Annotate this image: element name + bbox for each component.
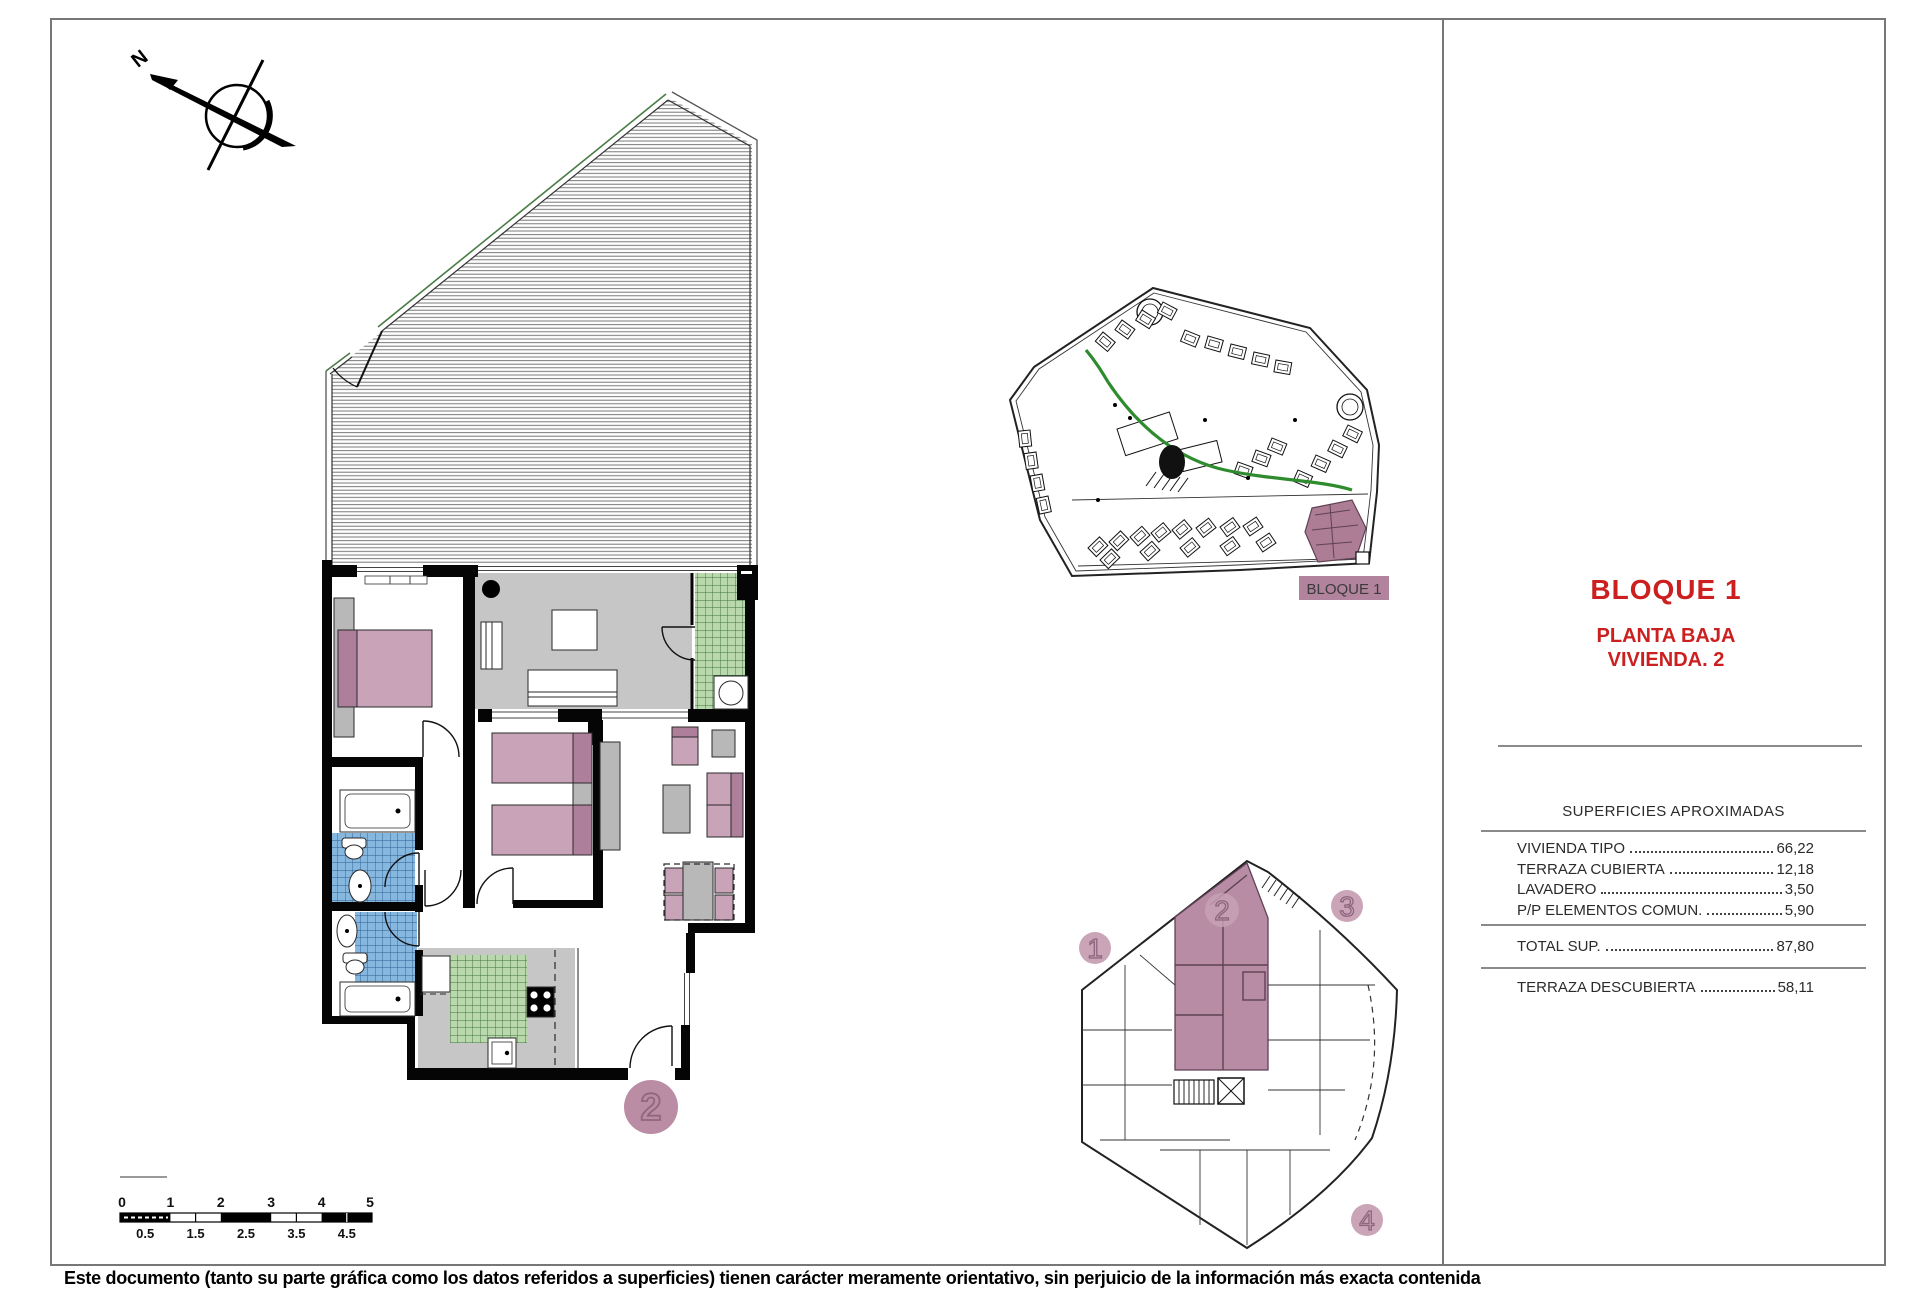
disclaimer-text: Este documento (tanto su parte gráfica c… <box>64 1268 1914 1289</box>
table-row: VIVIENDA TIPO 66,22 <box>1481 840 1866 861</box>
table-rule-bottom <box>1481 967 1866 969</box>
row-label: TERRAZA CUBIERTA <box>1517 861 1665 878</box>
total-label: TOTAL SUP. <box>1517 938 1601 955</box>
panel-divider <box>1442 18 1444 1264</box>
table-row: P/P ELEMENTOS COMUN. 5,90 <box>1481 902 1866 923</box>
leader-dots <box>1606 949 1774 951</box>
row-label: P/P ELEMENTOS COMUN. <box>1517 902 1702 919</box>
row-value: 66,22 <box>1776 840 1814 857</box>
surface-table: VIVIENDA TIPO 66,22 TERRAZA CUBIERTA 12,… <box>1481 840 1866 922</box>
row-value: 12,18 <box>1776 861 1814 878</box>
terrace-value: 58,11 <box>1778 979 1814 996</box>
floor-title: PLANTA BAJA <box>1520 624 1812 648</box>
leader-dots <box>1630 851 1773 853</box>
block-title: BLOQUE 1 <box>1520 574 1812 606</box>
title-block: BLOQUE 1 PLANTA BAJA VIVIENDA. 2 <box>1520 574 1812 672</box>
row-value: 5,90 <box>1785 902 1814 919</box>
table-rule-top <box>1481 830 1866 832</box>
dwelling-title: VIVIENDA. 2 <box>1520 648 1812 672</box>
leader-dots <box>1601 892 1781 894</box>
terrace-label: TERRAZA DESCUBIERTA <box>1517 979 1696 996</box>
leader-dots <box>1670 872 1774 874</box>
total-value: 87,80 <box>1776 938 1814 955</box>
panel-rule <box>1498 745 1862 747</box>
table-row: TERRAZA CUBIERTA 12,18 <box>1481 861 1866 882</box>
leader-dots <box>1701 990 1775 992</box>
surface-table-title: SUPERFICIES APROXIMADAS <box>1481 803 1866 820</box>
row-label: LAVADERO <box>1517 881 1596 898</box>
leader-dots <box>1707 913 1781 915</box>
table-row: LAVADERO 3,50 <box>1481 881 1866 902</box>
table-rule-mid <box>1481 924 1866 926</box>
row-label: VIVIENDA TIPO <box>1517 840 1625 857</box>
terrace-row: TERRAZA DESCUBIERTA 58,11 <box>1481 979 1866 1000</box>
total-row: TOTAL SUP. 87,80 <box>1481 938 1866 959</box>
row-value: 3,50 <box>1785 881 1814 898</box>
